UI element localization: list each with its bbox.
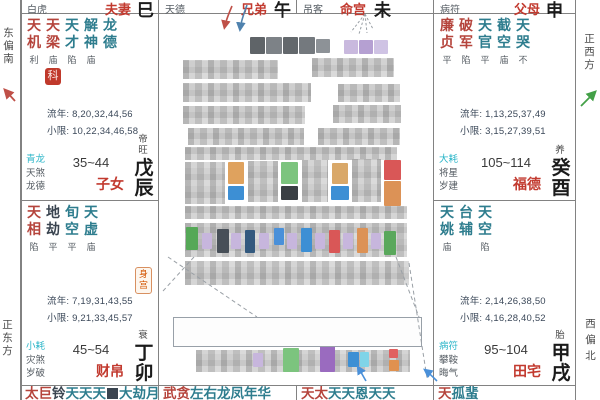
censored-color-block-25 <box>348 352 359 367</box>
star-char: 蜚 <box>465 386 479 400</box>
star-char: 空 <box>495 34 513 51</box>
mosaic-region-17 <box>196 350 410 372</box>
liunian-ages: 流年: 7,19,31,43,55 <box>47 293 133 307</box>
star-char: 天 <box>82 204 100 221</box>
mosaic-region-5 <box>333 105 401 123</box>
star-column: 天虚庙 <box>82 204 100 252</box>
red-compass-arrow-icon <box>5 90 15 101</box>
star-column: 天机利 <box>25 17 43 65</box>
star-char: 天 <box>438 204 456 221</box>
censored-color-block-22 <box>371 233 381 249</box>
censored-color-block-2 <box>281 162 298 184</box>
decade-age-range: 105~114 <box>464 155 548 170</box>
star-brightness: 陷 <box>457 55 475 65</box>
star-char: 天 <box>514 17 532 34</box>
ring-star-label: 吊客 <box>303 1 323 16</box>
green-compass-arrow-icon <box>581 92 595 106</box>
xiaoxian-ages: 小限: 10,22,34,46,58 <box>47 123 138 137</box>
palace-name-label: 财帛 <box>96 361 124 381</box>
xiaoxian-ages: 小限: 3,15,27,39,51 <box>460 123 546 137</box>
star-char: 德 <box>101 34 119 51</box>
mosaic-region-3 <box>338 84 400 102</box>
mosaic-region-15 <box>185 261 409 285</box>
star-column: 龙德 <box>101 17 119 65</box>
star-brightness: 平 <box>438 55 456 65</box>
palace-name-label: 兄弟 <box>241 0 267 18</box>
stem-char: 丁 <box>134 344 154 364</box>
star-list: 廉贞平破军陷天官平截空庙天哭不 <box>438 17 532 65</box>
mosaic-region-13 <box>185 206 407 219</box>
mosaic-region-12 <box>352 159 381 202</box>
censored-title-block-7 <box>374 40 388 54</box>
star-brightness: 陷 <box>476 242 494 252</box>
star-char: 孤 <box>452 386 466 400</box>
star-char: 龙 <box>101 17 119 34</box>
censored-color-block-17 <box>231 233 241 249</box>
ring-star-labels: 大耗将星岁建 <box>439 153 458 194</box>
body-palace-badge: 身宫 <box>135 267 152 294</box>
star-char: 天 <box>328 386 342 400</box>
censored-color-block-11 <box>274 228 284 245</box>
censored-star-block <box>107 388 118 399</box>
star-column: 台辅 <box>457 204 475 252</box>
censored-color-block-27 <box>389 349 398 358</box>
star-char: 大 <box>119 386 133 400</box>
earthly-branch-label: 午 <box>274 0 291 21</box>
star-column: 天相陷 <box>25 204 43 252</box>
star-column: 解神庙 <box>82 17 100 65</box>
star-char: 空 <box>63 221 81 238</box>
palace-name-label: 福德 <box>513 174 541 194</box>
xiaoxian-ages: 小限: 9,21,33,45,57 <box>47 310 133 324</box>
compass-east-south-label: 东偏南 <box>2 27 15 66</box>
earthly-branch-label: 未 <box>374 0 391 21</box>
palace-name-label: 田宅 <box>513 361 541 381</box>
star-char: 劫 <box>133 386 147 400</box>
palace-caibo: 天相陷地劫平旬空平天虚庙身宫流年: 7,19,31,43,55小限: 9,21,… <box>21 201 157 385</box>
censored-color-block-21 <box>343 233 353 249</box>
mosaic-region-2 <box>183 83 311 102</box>
star-char: 机 <box>25 34 43 51</box>
star-char: 龙 <box>217 386 231 400</box>
ring-star-label: 青龙 <box>26 153 45 167</box>
star-char: 恩 <box>355 386 369 400</box>
star-column: 廉贞平 <box>438 17 456 65</box>
compass-east-label: 正东方 <box>1 319 14 358</box>
xiaoxian-ages: 小限: 4,16,28,40,52 <box>460 310 546 324</box>
star-char: 天 <box>44 17 62 34</box>
star-char: 才 <box>63 34 81 51</box>
ring-star-label: 天煞 <box>26 167 45 181</box>
censored-color-block-8 <box>186 227 198 250</box>
ring-star-label: 大耗 <box>439 153 458 167</box>
stem-branch-label: 癸酉 <box>551 159 571 198</box>
star-char: 旬 <box>63 204 81 221</box>
censored-title-block-6 <box>359 40 373 54</box>
ring-star-labels: 青龙天煞龙德 <box>26 153 45 194</box>
censored-color-block-20 <box>315 233 325 249</box>
star-brightness: 平 <box>44 242 62 252</box>
mosaic-region-11 <box>302 160 328 202</box>
mosaic-region-7 <box>318 128 400 145</box>
liunian-ages: 流年: 2,14,26,38,50 <box>460 293 546 307</box>
star-char: 天 <box>369 386 383 400</box>
censored-color-block-26 <box>360 352 369 367</box>
star-char: 凤 <box>231 386 245 400</box>
star-brightness: 陷 <box>25 242 43 252</box>
star-char: 天 <box>438 386 452 400</box>
censored-color-block-3 <box>281 186 298 200</box>
star-char: 相 <box>25 221 43 238</box>
censored-color-block-15 <box>384 231 396 255</box>
star-column: 截空庙 <box>495 17 513 65</box>
compass-west-label: 正西方 <box>583 33 596 72</box>
star-brightness: 庙 <box>82 55 100 65</box>
star-char: 虚 <box>82 221 100 238</box>
star-char: 天 <box>93 386 107 400</box>
star-char: 天 <box>301 386 315 400</box>
star-char: 哭 <box>514 34 532 51</box>
ring-star-label: 天德 <box>165 1 185 16</box>
star-brightness: 庙 <box>495 55 513 65</box>
star-brightness: 庙 <box>82 242 100 252</box>
star-char: 贞 <box>438 34 456 51</box>
stem-branch-label: 甲戌 <box>551 344 571 383</box>
bottom-palace-3: 天孤蜚 <box>438 386 578 400</box>
star-char: 神 <box>82 34 100 51</box>
ring-star-label: 晦气 <box>439 367 458 381</box>
life-stage-label: 胎 <box>554 331 566 342</box>
star-brightness: 利 <box>25 55 43 65</box>
ring-star-label: 病符 <box>439 340 458 354</box>
star-char: 台 <box>457 204 475 221</box>
censored-color-block-4 <box>332 163 348 184</box>
star-brightness: 不 <box>514 55 532 65</box>
star-char: 右 <box>204 386 218 400</box>
star-column: 天梁庙 <box>44 17 62 65</box>
decade-age-range: 35~44 <box>51 155 131 170</box>
stem-char: 甲 <box>551 344 571 364</box>
star-char: 天 <box>25 17 43 34</box>
censored-color-block-14 <box>357 228 368 253</box>
palace-tianzhai: 天姚庙台辅天空陷流年: 2,14,26,38,50小限: 4,16,28,40,… <box>434 201 574 385</box>
star-char: 月 <box>146 386 160 400</box>
star-char: 空 <box>476 221 494 238</box>
branch-char: 酉 <box>551 179 571 199</box>
star-char: 截 <box>495 17 513 34</box>
censored-title-block-3 <box>299 37 315 54</box>
star-brightness: 平 <box>63 242 81 252</box>
star-char: 华 <box>258 386 272 400</box>
star-char: 姚 <box>438 221 456 238</box>
star-brightness: 平 <box>476 55 494 65</box>
mosaic-region-0 <box>183 60 278 79</box>
life-stage-label: 衰 <box>137 331 149 342</box>
mosaic-region-1 <box>312 58 394 77</box>
ring-star-label: 小耗 <box>26 340 45 354</box>
censored-title-block-0 <box>250 37 265 54</box>
ring-star-label: 龙德 <box>26 180 45 194</box>
header-palace-午: 天德兄弟午 <box>159 0 295 13</box>
ring-star-labels: 病符攀鞍晦气 <box>439 340 458 381</box>
censored-color-block-19 <box>287 233 297 249</box>
star-column: 天官平 <box>476 17 494 65</box>
stem-branch-label: 戊辰 <box>134 159 154 198</box>
palace-zinv: 天机利天梁庙天才陷解神庙龙德科流年: 8,20,32,44,56小限: 10,2… <box>21 14 157 200</box>
star-column: 天空陷 <box>476 204 494 252</box>
palace-name-label: 命宫 <box>340 0 366 18</box>
censored-color-block-9 <box>217 229 229 253</box>
branch-char: 卯 <box>134 364 154 384</box>
decade-age-range: 95~104 <box>464 342 548 357</box>
censored-title-block-5 <box>344 40 358 54</box>
star-char: 太 <box>315 386 329 400</box>
star-list: 天姚庙台辅天空陷 <box>438 204 494 252</box>
star-column: 地劫平 <box>44 204 62 252</box>
star-brightness <box>457 242 475 252</box>
censored-title-block-4 <box>316 39 330 53</box>
censored-color-block-12 <box>301 228 312 252</box>
star-char: 铃 <box>52 386 66 400</box>
bottom-palace-2: 天太天天恩天天 <box>301 386 436 400</box>
stem-char: 癸 <box>551 159 571 179</box>
star-char: 太 <box>25 386 39 400</box>
star-column: 天哭不 <box>514 17 532 65</box>
star-char: 军 <box>457 34 475 51</box>
ring-star-label: 将星 <box>439 167 458 181</box>
star-char: 武 <box>163 386 177 400</box>
mosaic-region-10 <box>248 161 278 202</box>
star-char: 天 <box>25 204 43 221</box>
censored-color-block-29 <box>253 353 263 367</box>
palace-name-label: 子女 <box>96 174 124 194</box>
censored-color-block-18 <box>259 233 269 249</box>
transform-badge: 科 <box>45 68 61 85</box>
censored-color-block-16 <box>202 233 212 249</box>
decade-age-range: 45~54 <box>51 342 131 357</box>
branch-char: 戌 <box>551 364 571 384</box>
star-list: 天机利天梁庙天才陷解神庙龙德 <box>25 17 119 65</box>
mosaic-region-4 <box>183 106 305 124</box>
bottom-palace-1: 武贪左右龙凤年华 <box>163 386 299 400</box>
header-palace-未: 吊客命宫未 <box>297 0 432 13</box>
palace-fude: 廉贞平破军陷天官平截空庙天哭不流年: 1,13,25,37,49小限: 3,15… <box>434 14 574 200</box>
life-stage-label: 帝旺 <box>137 135 149 156</box>
star-char: 廉 <box>438 17 456 34</box>
compass-west-north-label: 西偏北 <box>584 316 597 364</box>
star-brightness <box>101 55 119 65</box>
star-char: 辅 <box>457 221 475 238</box>
censored-detail-box <box>173 317 422 347</box>
censored-color-block-5 <box>331 186 349 200</box>
stem-char: 戊 <box>134 159 154 179</box>
star-char: 劫 <box>44 221 62 238</box>
star-column: 破军陷 <box>457 17 475 65</box>
censored-title-block-2 <box>283 37 298 54</box>
star-column: 天姚庙 <box>438 204 456 252</box>
star-list: 天相陷地劫平旬空平天虚庙 <box>25 204 100 252</box>
censored-color-block-10 <box>245 230 255 253</box>
star-column: 天才陷 <box>63 17 81 65</box>
ring-star-label: 岁破 <box>26 367 45 381</box>
branch-char: 辰 <box>134 179 154 199</box>
star-char: 天 <box>382 386 396 400</box>
liunian-ages: 流年: 1,13,25,37,49 <box>460 106 546 120</box>
header-palace-巳: 白虎夫妻巳 <box>21 0 157 13</box>
censored-color-block-24 <box>320 346 335 372</box>
stem-branch-label: 丁卯 <box>134 344 154 383</box>
ring-star-label: 攀鞍 <box>439 354 458 368</box>
censored-color-block-6 <box>384 160 401 180</box>
star-char: 天 <box>63 17 81 34</box>
censored-color-block-13 <box>329 230 340 253</box>
censored-title-block-1 <box>266 37 282 54</box>
header-palace-申: 病符父母申 <box>434 0 574 13</box>
liunian-ages: 流年: 8,20,32,44,56 <box>47 106 133 120</box>
star-brightness: 庙 <box>438 242 456 252</box>
star-char: 官 <box>476 34 494 51</box>
censored-color-block-23 <box>283 348 299 372</box>
star-char: 左 <box>190 386 204 400</box>
star-brightness: 庙 <box>44 55 62 65</box>
censored-color-block-0 <box>228 162 244 184</box>
star-char: 解 <box>82 17 100 34</box>
star-char: 天 <box>79 386 93 400</box>
ziwei-doushu-chart: 东偏南 正东方 正西方 西偏北 白虎夫妻巳天德兄弟午吊客命宫未病符父母申 天机利… <box>0 0 600 400</box>
star-char: 地 <box>44 204 62 221</box>
star-char: 年 <box>244 386 258 400</box>
life-stage-label: 养 <box>554 146 566 157</box>
ring-star-labels: 小耗灾煞岁破 <box>26 340 45 381</box>
star-char: 天 <box>476 204 494 221</box>
star-char: 天 <box>342 386 356 400</box>
star-char: 贪 <box>177 386 191 400</box>
censored-color-block-7 <box>384 181 401 206</box>
star-brightness: 陷 <box>63 55 81 65</box>
star-char: 破 <box>457 17 475 34</box>
ring-star-label: 灾煞 <box>26 354 45 368</box>
censored-color-block-1 <box>228 186 244 200</box>
bottom-palace-0: 太巨铃天天天大劫月 <box>25 386 161 400</box>
star-char: 巨 <box>39 386 53 400</box>
star-column: 旬空平 <box>63 204 81 252</box>
star-char: 天 <box>66 386 80 400</box>
mosaic-region-9 <box>185 162 225 204</box>
star-char: 梁 <box>44 34 62 51</box>
star-char: 天 <box>476 17 494 34</box>
ring-star-label: 岁建 <box>439 180 458 194</box>
censored-color-block-28 <box>389 360 399 371</box>
mosaic-region-6 <box>188 128 304 145</box>
